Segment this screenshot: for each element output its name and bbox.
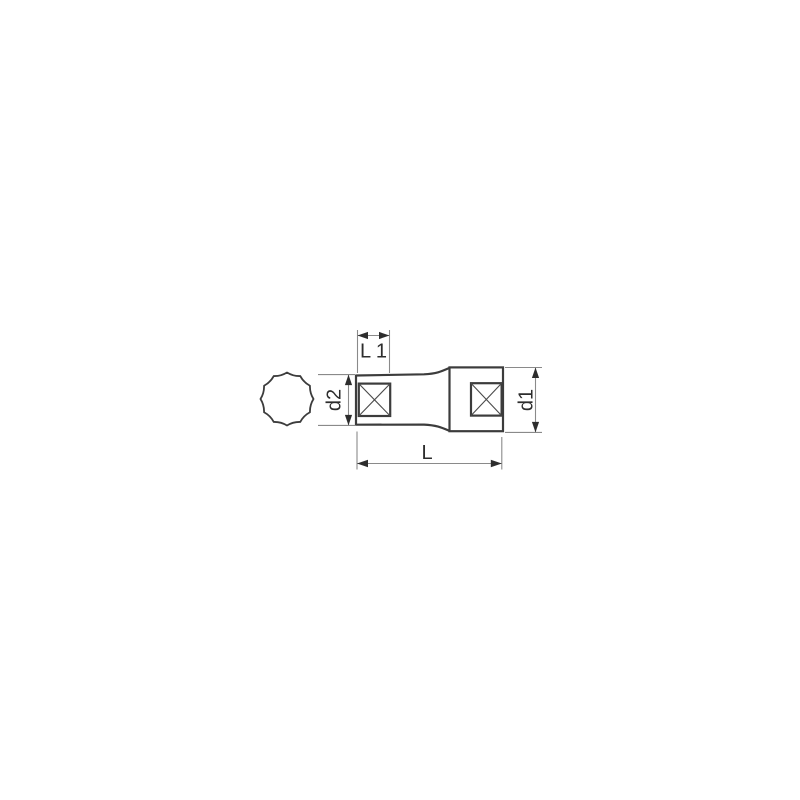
socket-head-outline xyxy=(450,367,504,431)
socket-neck-outline xyxy=(356,368,450,431)
dimension-l1: L 1 xyxy=(358,330,390,373)
d2-arrow-down-icon xyxy=(345,415,352,426)
twelve-point-end-view xyxy=(261,373,314,426)
l-arrow-right-icon xyxy=(491,460,502,467)
d1-arrow-down-icon xyxy=(532,422,539,433)
d1-arrow-up-icon xyxy=(532,368,539,379)
d2-label: d2 xyxy=(324,389,346,411)
dimension-d2: d2 xyxy=(318,375,355,426)
l-label: L xyxy=(421,442,432,464)
d2-arrow-up-icon xyxy=(345,375,352,386)
drive-square-left xyxy=(359,384,390,416)
drive-square-right xyxy=(471,383,502,415)
dimension-d1: d1 xyxy=(505,368,542,433)
dimension-l: L xyxy=(357,432,502,470)
twelve-point-profile xyxy=(261,373,314,426)
l1-label: L 1 xyxy=(360,341,387,363)
l-arrow-left-icon xyxy=(357,460,368,467)
socket-side-view xyxy=(356,367,503,431)
d1-label: d1 xyxy=(516,389,538,411)
l1-arrow-left-icon xyxy=(358,332,369,339)
drawing-canvas: L 1 d2 d1 L xyxy=(0,0,800,800)
l1-arrow-right-icon xyxy=(379,332,390,339)
socket-technical-drawing: L 1 d2 d1 L xyxy=(0,0,800,800)
